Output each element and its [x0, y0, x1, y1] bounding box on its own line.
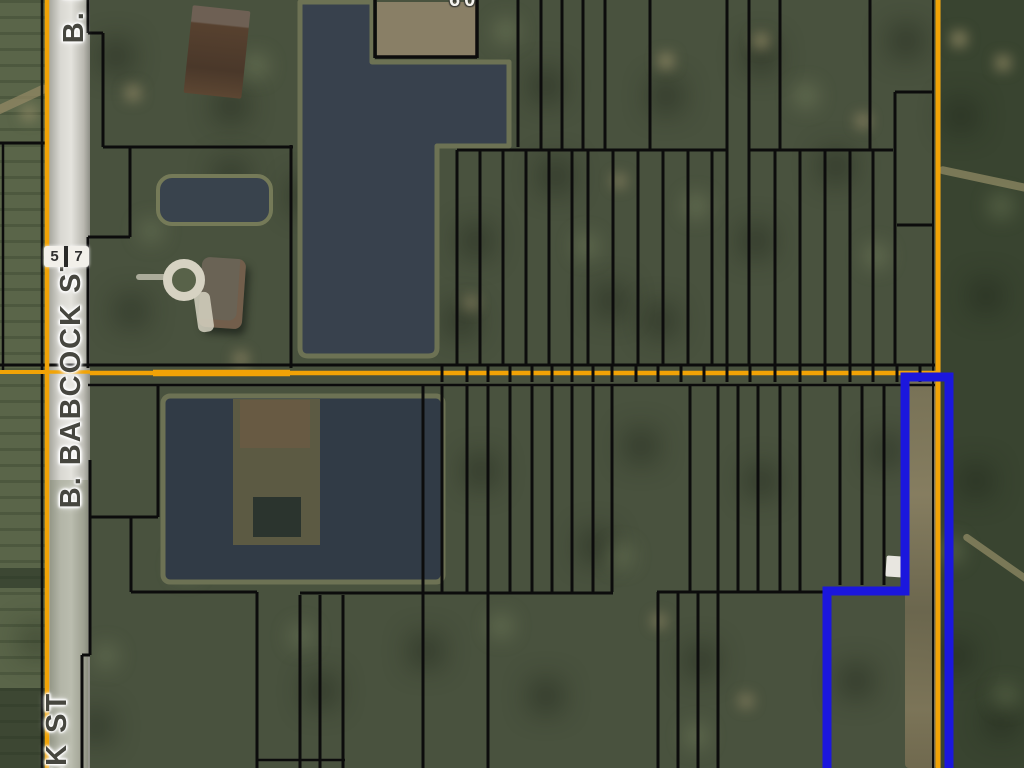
route-marker-right: 7 [68, 246, 89, 267]
pond-island-center [253, 497, 301, 537]
pond-island-brush [240, 400, 310, 448]
road-label-babcock-top: B. BABCOCK ST [59, 0, 89, 45]
road-label-babcock: B. BABCOCK ST [56, 250, 86, 510]
small-pond [158, 176, 271, 224]
parcel-overlay [0, 0, 1024, 768]
road-label-babcock-bottom: B. BABCOCK ST [42, 690, 72, 768]
partial-street-label: 60 [449, 0, 479, 12]
route-marker-left: 5 [44, 246, 65, 267]
route-marker-divider [64, 246, 68, 267]
map-canvas[interactable]: B. BABCOCK ST B. BABCOCK ST B. BABCOCK S… [0, 0, 1024, 768]
selected-parcel-outline[interactable] [827, 377, 949, 768]
